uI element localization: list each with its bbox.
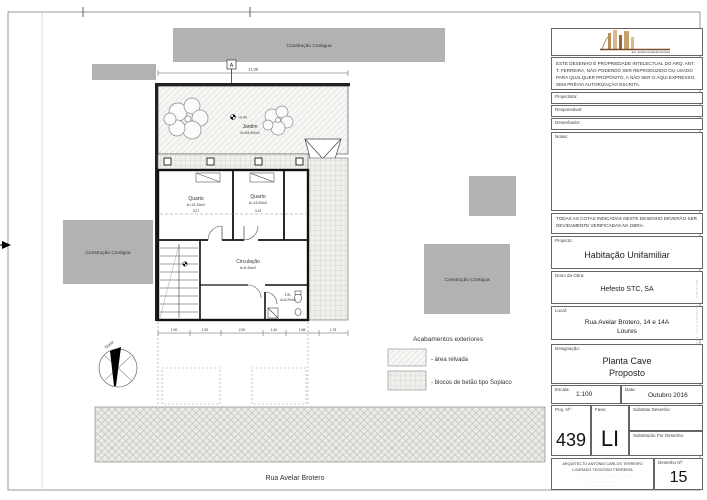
dim-seg: 1.98 (299, 328, 306, 332)
adjacent-label-left: Construção Contigua (85, 250, 130, 256)
dim-seg: 1.40 (271, 328, 278, 332)
data-cell: Data: Outubro 2016 (621, 385, 703, 404)
legend-title: Acabamentos exteriores (413, 336, 484, 343)
adjacent-label-right: Construção Contigua (444, 277, 489, 283)
room-quarto2-area: A=13.00m2 (249, 201, 267, 205)
garden-name: Jardim (242, 124, 257, 130)
room-is-area: A=6.20m2 (280, 298, 296, 302)
room-quarto2-name: Quarto (250, 194, 266, 200)
title-block: arq. antónio teodósio ferreira ESTE DESE… (551, 28, 703, 490)
section-marker-label: A (230, 63, 234, 69)
dim-room2-width: 3.24 (255, 209, 261, 213)
scale-value: 1:100 (576, 391, 592, 398)
logo-caption: arq. antónio teodósio ferreira (632, 50, 671, 54)
substituido-cell: Substituído Por Desenho: (629, 431, 703, 456)
projectista-box: Projectista: (551, 92, 703, 104)
room-quarto1-area: A=13.10m2 (187, 203, 205, 207)
legend-item-grass: - área relvada (431, 357, 469, 363)
architect-cell: ARQUITECTO ANTÓNIO CARLOS TERREIRO LOGRA… (551, 458, 654, 490)
architect-contact-line: ······· ····· (552, 484, 653, 489)
responsavel-box: Responsável: (551, 105, 703, 117)
dim-seg: 1.90 (202, 328, 209, 332)
legend-item-blocks: - blocos de betão tipo Soplaco (431, 380, 512, 386)
legend-swatch-grass (388, 349, 426, 366)
garden-area: A=93.90m2 (240, 131, 260, 135)
dim-room1-width: 3.27 (193, 209, 199, 213)
project-title: Habitação Unifamiliar (552, 250, 702, 260)
room-circulacao-name: Circulação (236, 259, 260, 265)
dim-seg: 1.75 (330, 328, 337, 332)
project-number: 439 (552, 430, 590, 451)
local-box: Local: Rua Avelar Brotero, 14 e 14A Lour… (551, 306, 703, 340)
fase-cell: Fase: LI (591, 405, 629, 456)
desenhador-label: Desenhador: (555, 120, 581, 125)
substituido-label: Substituído Por Desenho: (633, 433, 684, 438)
architect-logo: arq. antónio teodósio ferreira (552, 29, 702, 55)
substitui-label: Substitui Desenho: (633, 407, 671, 412)
address-line2: Loures (552, 328, 702, 335)
local-label: Local: (555, 308, 567, 313)
dim-seg: 2.50 (239, 328, 246, 332)
adjacent-label-top: Construção Contigua (286, 43, 331, 49)
desenho-n-cell: Desenho Nº: 15 (654, 458, 703, 490)
boundary-dashes (158, 322, 308, 406)
north-label: Norte (104, 339, 116, 350)
escala-cell: Escala: 1:100 (551, 385, 621, 404)
projecto-label: Projecto: (555, 238, 573, 243)
dim-seg: 1.90 (171, 328, 178, 332)
date-value: Outubro 2016 (648, 392, 688, 399)
address-line1: Rua Avelar Brotero, 14 e 14A (552, 319, 702, 326)
projecto-box: Projecto: Habitação Unifamiliar (551, 236, 703, 269)
level-marker (183, 262, 187, 266)
cotas-note-box: TODAS AS COTAS INDICADAS NESTE DESENHO D… (551, 213, 703, 234)
north-arrow-icon: Norte (99, 339, 137, 387)
proj-n-label: Proj. Nº: (555, 407, 572, 412)
escala-label: Escala: (555, 387, 570, 392)
disclaimer-box: ESTE DESENHO É PROPRIEDADE INTELECTUAL D… (551, 57, 703, 90)
block-patio (308, 158, 348, 320)
dono-box: Dono da Obra: Hefesto STC, SA (551, 271, 703, 304)
designacao-label: Designação: (555, 346, 580, 351)
projectista-label: Projectista: (555, 94, 577, 99)
garden-level: +0.40 (238, 116, 247, 120)
notas-label: Notas: (555, 134, 568, 139)
data-label: Data: (625, 387, 636, 392)
substitui-cell: Substitui Desenho: (629, 405, 703, 431)
notas-box: Notas: (551, 132, 703, 211)
drawing-number: 15 (655, 469, 702, 487)
dono-label: Dono da Obra: (555, 273, 585, 278)
architect-name-line1: ARQUITECTO ANTÓNIO CARLOS TERREIRO (552, 462, 653, 466)
phase-value: LI (592, 426, 628, 452)
exterior-finishes-legend: Acabamentos exteriores - área relvada - … (388, 336, 512, 390)
dim-top-total: 11.98 (248, 67, 258, 72)
proj-n-cell: Proj. Nº: 439 (551, 405, 591, 456)
drawing-sheet: Construção Contigua Construção Contigua … (0, 0, 707, 500)
owner-name: Hefesto STC, SA (552, 286, 702, 293)
desenhador-box: Desenhador: (551, 118, 703, 130)
designacao-box: Designação: Planta Cave Proposto (551, 344, 703, 384)
architect-name-line2: LOGRADO TEODÓSIO FERREIRA (552, 468, 653, 472)
fase-label: Fase: (595, 407, 606, 412)
legend-swatch-blocks (388, 371, 426, 390)
room-quarto1-name: Quarto (188, 196, 204, 202)
street: Rua Avelar Brotero (95, 407, 545, 482)
desenho-n-label: Desenho Nº: (658, 460, 683, 465)
room-circulacao-area: A=6.40m2 (240, 266, 256, 270)
room-is-name: I.S. (285, 292, 291, 297)
drawing-name-line1: Planta Cave (552, 356, 702, 366)
logo-box: arq. antónio teodósio ferreira (551, 28, 703, 56)
section-marker: A (227, 60, 236, 83)
frame-arrow-marker (2, 241, 11, 249)
responsavel-label: Responsável: (555, 107, 582, 112)
drawing-name-line2: Proposto (552, 368, 702, 378)
street-name: Rua Avelar Brotero (265, 475, 324, 482)
terrace (158, 154, 308, 170)
